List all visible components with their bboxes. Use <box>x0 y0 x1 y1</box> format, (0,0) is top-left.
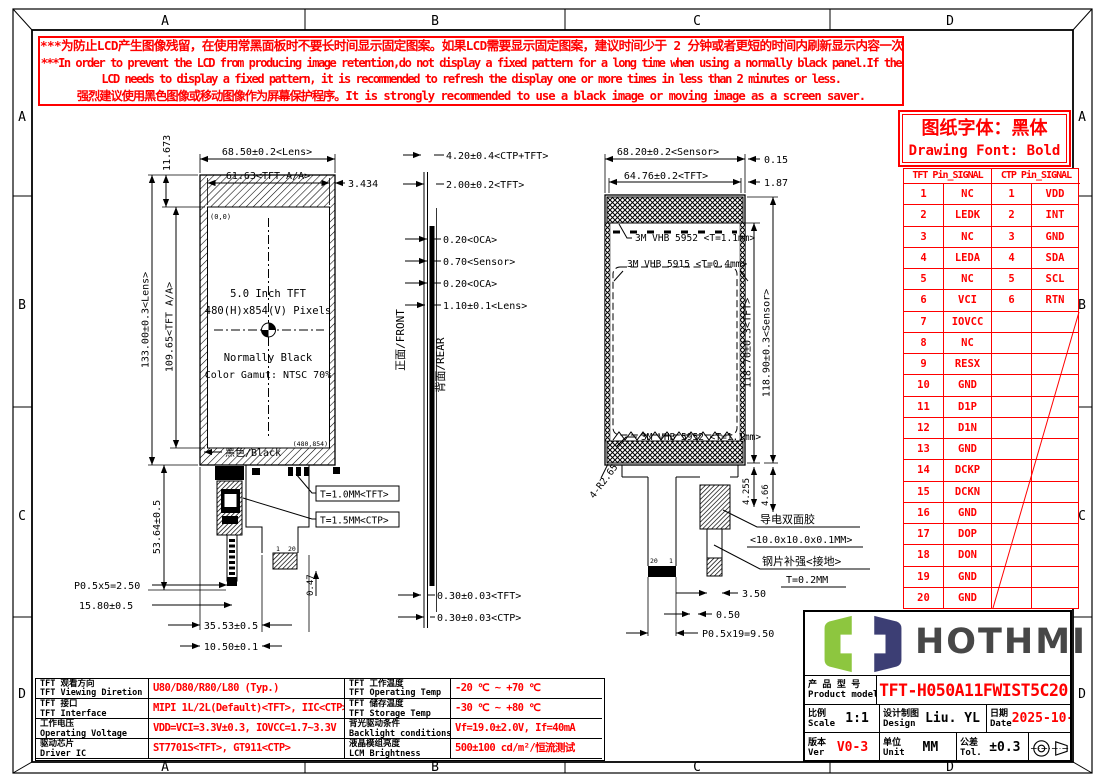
spec-value: ST7701S<TFT>, GT911<CTP> <box>149 739 345 759</box>
pin-cell <box>992 524 1032 545</box>
end-coord: (480,854) <box>293 440 328 448</box>
zone-label-right-c: C <box>1078 509 1086 524</box>
tolerance-value: ±0.3 <box>989 740 1020 755</box>
pin-cell: 4 <box>992 248 1032 269</box>
pin-cell: 20 <box>904 588 944 609</box>
pin-cell: D1P <box>944 397 992 418</box>
spec-label: 工作电压Operating Voltage <box>36 719 149 739</box>
pin-cell <box>992 503 1032 524</box>
zone-label-left-b: B <box>18 298 26 313</box>
tolerance-cell: 公差 Tol. ±0.3 <box>957 733 1029 762</box>
font-note-en: Drawing Font: Bold <box>903 142 1066 161</box>
font-note-cn: 图纸字体：黑体 <box>903 115 1066 142</box>
version-value: V0-3 <box>837 740 868 755</box>
date-label-cn: 日期 <box>990 709 1012 719</box>
dim-oca1: 0.20<OCA> <box>443 235 497 246</box>
zone-label-left-d: D <box>18 687 26 702</box>
dim-047: 0.47 <box>306 574 316 596</box>
hothmi-logo-icon <box>813 614 913 674</box>
dim-p05x19: P0.5x19=9.50 <box>702 629 774 640</box>
product-model-label-cell: 产 品 型 号 Product model <box>805 676 877 704</box>
pin-cell: INT <box>1032 205 1078 226</box>
zone-label-top-a: A <box>161 14 169 29</box>
warning-line-1: ***为防止LCD产生图像残留，在使用常黑面板时不要长时间显示固定图案。如果LC… <box>40 38 902 55</box>
pin-cell: DON <box>944 545 992 566</box>
rear-view: 3M VHB 5952 <T=1.1mm> 3M VHB 5915 <T=0.4… <box>588 147 870 640</box>
vhb-bottom-label: 3M VHB 5952 <T=1.1mm> <box>641 432 761 443</box>
date-value: 2025-10-29 <box>1012 711 1070 726</box>
first-angle-projection-icon <box>1030 735 1070 761</box>
steel-thickness: T=0.2MM <box>786 575 828 586</box>
vhb-top-label: 3M VHB 5952 <T=1.1mm> <box>635 233 755 244</box>
zone-label-right-b: B <box>1078 298 1086 313</box>
pin-cell: IOVCC <box>944 312 992 333</box>
spec-label: TFT 观看方向TFT Viewing Diretion <box>36 679 149 699</box>
dim-ctp-tft-thickness: 4.20±0.4<CTP+TFT> <box>446 151 548 162</box>
product-model-label-cn: 产 品 型 号 <box>808 680 877 690</box>
pin-cell <box>992 375 1032 396</box>
spec-label: 驱动芯片Driver IC <box>36 739 149 759</box>
pin-cell <box>1032 333 1078 354</box>
spec-value: -20 ℃ ~ +70 ℃ <box>451 679 602 699</box>
pin-cell: 1 <box>992 184 1032 205</box>
engineering-drawing-page: { "frame": { "zones": ["A", "B", "C", "D… <box>0 0 1105 782</box>
pin-cell: D1N <box>944 418 992 439</box>
dim-4255: 4.255 <box>742 478 752 505</box>
thickness-ctp-label: T=1.5MM<CTP> <box>320 516 389 527</box>
pin-cell: 7 <box>904 312 944 333</box>
pin-cell: 9 <box>904 354 944 375</box>
pin-cell <box>1032 418 1078 439</box>
pin-cell: 14 <box>904 460 944 481</box>
date-cell: 日期 Date 2025-10-29 <box>987 705 1070 732</box>
spec-label: TFT 工作温度TFT Operating Temp <box>345 679 451 699</box>
front-view: (0,0) 5.0 Inch TFT 480(H)x854(V) Pixels … <box>74 135 399 653</box>
pin-cell: DCKN <box>944 482 992 503</box>
product-model-value: TFT-H050A11FWIST5C20 <box>879 681 1068 700</box>
pin-cell: 4 <box>904 248 944 269</box>
panel-size-label: 5.0 Inch TFT <box>230 288 307 300</box>
dim-aa-width: 61.63<TFT A/A> <box>226 171 310 182</box>
pin-cell <box>992 354 1032 375</box>
zone-label-bottom-c: C <box>693 760 701 775</box>
pin-cell: SCL <box>1032 269 1078 290</box>
version-label-cn: 版本 <box>808 738 826 748</box>
pin-cell: 6 <box>904 290 944 311</box>
rear-pin20-label: 20 <box>650 557 658 565</box>
version-label-en: Ver <box>808 748 826 758</box>
pin-cell <box>992 418 1032 439</box>
dim-050: 0.50 <box>716 610 740 621</box>
pin-cell: GND <box>944 588 992 609</box>
spec-value: 500±100 cd/m²/恒流测试 <box>451 739 602 759</box>
dim-sensor: 0.70<Sensor> <box>443 257 515 268</box>
panel-gamut-label: Color Gamut: NTSC 70% <box>205 370 331 381</box>
spec-label: TFT 接口TFT Interface <box>36 699 149 719</box>
pin-cell: 17 <box>904 524 944 545</box>
pin-cell: 12 <box>904 418 944 439</box>
dim-sensor-height: 118.90±0.3<Sensor> <box>762 289 773 397</box>
pin-cell <box>1032 524 1078 545</box>
spec-label: TFT 储存温度TFT Storage Temp <box>345 699 451 719</box>
design-value: Liu. YL <box>925 711 980 726</box>
pin-cell: 6 <box>992 290 1032 311</box>
spec-value: Vf=19.0±2.0V, If=40mA <box>451 719 602 739</box>
pin-cell: DOP <box>944 524 992 545</box>
dim-1050: 10.50±0.1 <box>204 642 258 653</box>
pin-cell <box>992 482 1032 503</box>
retention-warning-box: ***为防止LCD产生图像残留，在使用常黑面板时不要长时间显示固定图案。如果LC… <box>38 36 904 106</box>
panel-mode-label: Normally Black <box>224 352 313 364</box>
spec-value: VDD=VCI=3.3V±0.3, IOVCC=1.7~3.3V <box>149 719 345 739</box>
pin-cell <box>1032 312 1078 333</box>
dim-right-offset: 3.434 <box>348 179 378 190</box>
dim-aa-height: 109.65<TFT A/A> <box>165 282 176 372</box>
scale-value: 1:1 <box>845 711 868 726</box>
zone-label-top-b: B <box>431 14 439 29</box>
pin-cell <box>1032 482 1078 503</box>
pin-cell: 13 <box>904 439 944 460</box>
pin-cell: 3 <box>992 227 1032 248</box>
spec-value: MIPI 1L/2L(Default)<TFT>, IIC<CTP> <box>149 699 345 719</box>
side-view: 4.20±0.4<CTP+TFT> 2.00±0.2<TFT> 0.20<OCA… <box>394 151 548 628</box>
fpc-pin1-label: 1 <box>276 545 280 553</box>
dim-corner-radius: 4-R2.65 <box>588 462 621 501</box>
zone-label-left-a: A <box>18 110 26 125</box>
title-block: HOTHMI 产 品 型 号 Product model TFT-H050A11… <box>803 610 1072 762</box>
dim-oca2: 0.20<OCA> <box>443 279 497 290</box>
pin-cell: LEDK <box>944 205 992 226</box>
dim-3553: 35.53±0.5 <box>204 621 258 632</box>
pin-cell: VCI <box>944 290 992 311</box>
warning-line-4: 强烈建议使用黑色图像或移动图像作为屏幕保护程序。It is strongly r… <box>40 88 902 105</box>
dim-sensor-width: 68.20±0.2<Sensor> <box>617 147 719 158</box>
dim-lens-thickness: 1.10±0.1<Lens> <box>443 301 527 312</box>
pin-cell <box>1032 567 1078 588</box>
dim-466: 4.66 <box>761 484 771 506</box>
spec-value: U80/D80/R80/L80 (Typ.) <box>149 679 345 699</box>
pin-cell: NC <box>944 333 992 354</box>
fpc-pin20-label: 20 <box>288 545 296 553</box>
zone-label-bottom-d: D <box>946 760 954 775</box>
spec-value: -30 ℃ ~ +80 ℃ <box>451 699 602 719</box>
pin-cell <box>1032 503 1078 524</box>
pin-cell: NC <box>944 227 992 248</box>
design-label-en: Design <box>883 719 919 729</box>
scale-label-cn: 比例 <box>808 709 835 719</box>
pin-cell: GND <box>944 567 992 588</box>
drawing-font-note: 图纸字体：黑体 Drawing Font: Bold <box>898 110 1071 167</box>
dim-350: 3.50 <box>742 589 766 600</box>
dim-030-ctp: 0.30±0.03<CTP> <box>437 613 521 624</box>
logo-text: HOTHMI <box>915 622 1087 662</box>
pin-table-header-tft: TFT Pin_SIGNAL <box>904 169 992 184</box>
zone-label-top-c: C <box>693 14 701 29</box>
pin-cell: RESX <box>944 354 992 375</box>
pin-cell: NC <box>944 269 992 290</box>
dim-1580: 15.80±0.5 <box>79 601 133 612</box>
warning-line-2: ***In order to prevent the LCD from prod… <box>40 55 902 72</box>
rear-face-label: 背面/REAR <box>433 337 447 392</box>
date-label-en: Date <box>990 719 1012 729</box>
product-model-label-en: Product model <box>808 690 877 700</box>
pin-cell: LEDA <box>944 248 992 269</box>
dim-tft-width: 64.76±0.2<TFT> <box>624 171 708 182</box>
scale-label-en: Scale <box>808 719 835 729</box>
black-border-label: 黑色/Black <box>225 446 281 459</box>
thickness-tft-label: T=1.0MM<TFT> <box>320 490 389 501</box>
pin-cell: VDD <box>1032 184 1078 205</box>
dim-fpc-height: 53.64±0.5 <box>152 500 163 554</box>
design-cell: 设计制图 Design Liu. YL <box>880 705 987 732</box>
dim-187: 1.87 <box>764 178 788 189</box>
conductive-tape-size: <10.0x10.0x0.1MM> <box>750 535 852 546</box>
dim-tft-thickness: 2.00±0.2<TFT> <box>446 180 524 191</box>
zone-label-bottom-a: A <box>161 760 169 775</box>
pin-cell: 8 <box>904 333 944 354</box>
pin-cell: 15 <box>904 482 944 503</box>
pin-cell <box>992 588 1032 609</box>
unit-value: MM <box>923 740 939 755</box>
logo-row: HOTHMI <box>805 612 1070 676</box>
zone-label-right-a: A <box>1078 110 1086 125</box>
spec-label: 背光驱动条件Backlight conditions <box>345 719 451 739</box>
dim-lens-width: 68.50±0.2<Lens> <box>222 147 312 158</box>
pin-cell <box>1032 397 1078 418</box>
pin-cell: 5 <box>904 269 944 290</box>
vhb-mid-label: 3M VHB 5915 <T=0.4mm> <box>627 259 747 270</box>
zone-label-right-d: D <box>1078 687 1086 702</box>
unit-cell: 单位 Unit MM <box>880 733 957 762</box>
pin-cell <box>992 460 1032 481</box>
design-label-cn: 设计制图 <box>883 709 919 719</box>
dim-030-tft: 0.30±0.03<TFT> <box>437 591 521 602</box>
pin-cell <box>1032 588 1078 609</box>
pin-cell: 19 <box>904 567 944 588</box>
unit-label-en: Unit <box>883 748 905 758</box>
dim-lens-height: 133.00±0.3<Lens> <box>141 272 152 368</box>
pin-cell: 2 <box>992 205 1032 226</box>
pin-cell <box>1032 375 1078 396</box>
pin-cell: GND <box>1032 227 1078 248</box>
zone-label-top-d: D <box>946 14 954 29</box>
dim-015: 0.15 <box>764 155 788 166</box>
pin-cell <box>1032 439 1078 460</box>
pin-cell: 3 <box>904 227 944 248</box>
pin-cell: SDA <box>1032 248 1078 269</box>
pin-cell: RTN <box>1032 290 1078 311</box>
pin-cell <box>992 439 1032 460</box>
tolerance-label-cn: 公差 <box>960 738 982 748</box>
pin-cell <box>992 333 1032 354</box>
pin-cell: GND <box>944 503 992 524</box>
pin-cell: NC <box>944 184 992 205</box>
pin-cell <box>1032 354 1078 375</box>
projection-symbol-cell <box>1029 733 1070 762</box>
pin-cell <box>1032 460 1078 481</box>
steel-reinforce-label: 钢片补强<接地> <box>762 555 842 568</box>
version-cell: 版本 Ver V0-3 <box>805 733 880 762</box>
pin-cell: 16 <box>904 503 944 524</box>
origin-coord: (0,0) <box>210 213 231 221</box>
pin-cell: 11 <box>904 397 944 418</box>
pin-table-header-ctp: CTP Pin_SIGNAL <box>992 169 1080 184</box>
pin-cell <box>992 312 1032 333</box>
pin-cell: DCKP <box>944 460 992 481</box>
pin-cell <box>992 545 1032 566</box>
product-model-value-cell: TFT-H050A11FWIST5C20 <box>877 676 1070 704</box>
pin-cell <box>992 567 1032 588</box>
pin-cell <box>992 397 1032 418</box>
pin-cell: 2 <box>904 205 944 226</box>
pin-cell: 5 <box>992 269 1032 290</box>
pin-cell: GND <box>944 375 992 396</box>
rear-pin1-label: 1 <box>669 557 673 565</box>
zone-label-bottom-b: B <box>431 760 439 775</box>
unit-label-cn: 单位 <box>883 738 905 748</box>
conductive-tape-label: 导电双面胶 <box>760 512 815 526</box>
pin-cell: 10 <box>904 375 944 396</box>
panel-resolution-label: 480(H)x854(V) Pixels <box>205 305 331 317</box>
pin-signal-table: TFT Pin_SIGNAL CTP Pin_SIGNAL 1NC1VDD2LE… <box>903 168 1079 609</box>
dim-tft-height: 118.70±0.3<TFT> <box>743 298 754 388</box>
tolerance-label-en: Tol. <box>960 748 982 758</box>
pin-cell: 18 <box>904 545 944 566</box>
spec-label: 液晶模组亮度LCM Brightness <box>345 739 451 759</box>
dim-top-offset: 11.673 <box>162 135 173 171</box>
scale-cell: 比例 Scale 1:1 <box>805 705 880 732</box>
pin-cell: 1 <box>904 184 944 205</box>
pin-cell <box>1032 545 1078 566</box>
pin-cell: GND <box>944 439 992 460</box>
zone-label-left-c: C <box>18 509 26 524</box>
pin-table-body: 1NC1VDD2LEDK2INT3NC3GND4LEDA4SDA5NC5SCL6… <box>904 184 1078 609</box>
spec-table: TFT 观看方向TFT Viewing DiretionU80/D80/R80/… <box>35 678 605 761</box>
warning-line-3: LCD needs to display a fixed pattern, it… <box>40 71 902 88</box>
front-face-label: 正面/FRONT <box>394 309 407 371</box>
dim-p05x5: P0.5x5=2.50 <box>74 581 140 592</box>
